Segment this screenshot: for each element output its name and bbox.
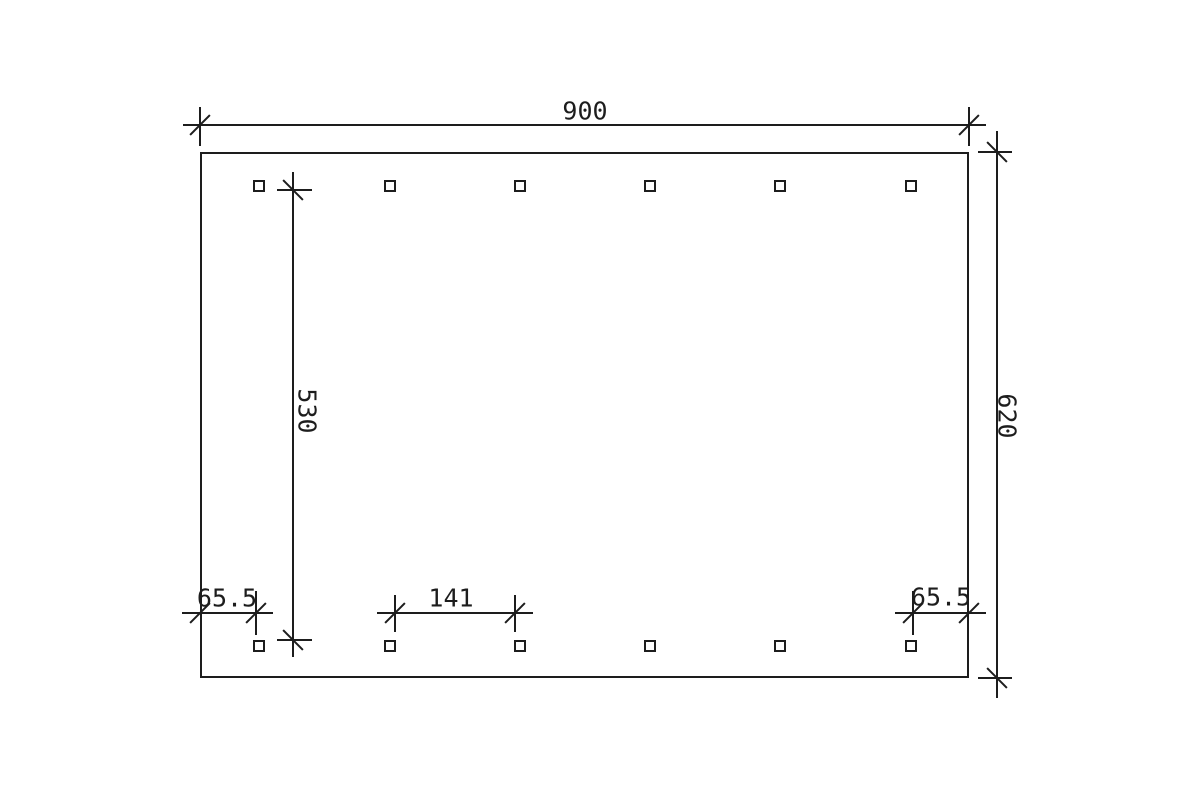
dim-left-span-label: 530 [295, 388, 320, 433]
post-marker [384, 640, 396, 652]
post-marker [774, 180, 786, 192]
dim-right-height-label: 620 [995, 393, 1020, 438]
post-marker [253, 180, 265, 192]
foundation-plan-drawing: 900 620 530 65.5 141 65.5 [0, 0, 1200, 800]
post-marker [253, 640, 265, 652]
post-marker [905, 640, 917, 652]
post-marker [514, 640, 526, 652]
dim-top-width-label: 900 [562, 99, 607, 124]
post-marker [384, 180, 396, 192]
dim-bottom-right-line [895, 612, 986, 614]
dim-bottom-right-label: 65.5 [911, 585, 971, 610]
dim-bottom-left-label: 65.5 [197, 586, 257, 611]
post-marker [644, 180, 656, 192]
post-marker [514, 180, 526, 192]
post-marker [774, 640, 786, 652]
dim-post-spacing-label: 141 [428, 586, 473, 611]
post-marker [905, 180, 917, 192]
post-marker [644, 640, 656, 652]
